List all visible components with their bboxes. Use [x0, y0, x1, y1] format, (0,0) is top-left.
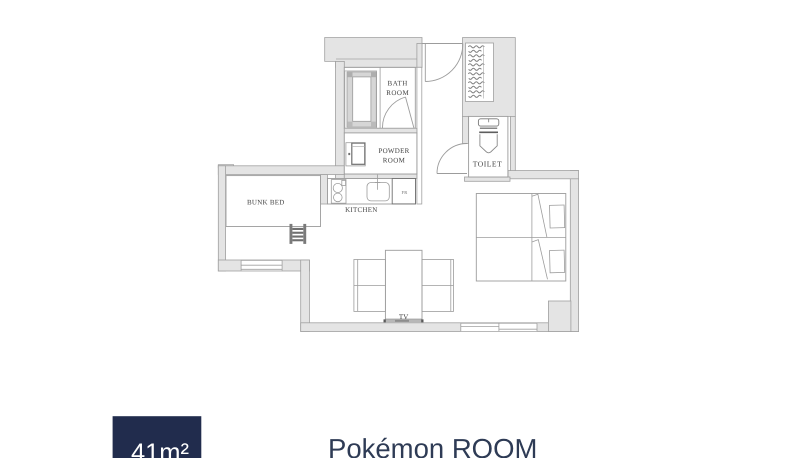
- svg-text:POWDER: POWDER: [378, 147, 409, 155]
- svg-text:Pokémon ROOM: Pokémon ROOM: [328, 433, 537, 458]
- svg-text:BATH: BATH: [388, 79, 408, 87]
- svg-text:ROOM: ROOM: [386, 89, 409, 97]
- svg-text:KITCHEN: KITCHEN: [345, 206, 377, 214]
- svg-text:BUNK BED: BUNK BED: [247, 198, 285, 206]
- svg-text:41m²: 41m²: [131, 439, 189, 458]
- svg-text:FR: FR: [401, 190, 407, 195]
- svg-text:TOILET: TOILET: [473, 159, 502, 168]
- svg-text:ROOM: ROOM: [383, 156, 406, 164]
